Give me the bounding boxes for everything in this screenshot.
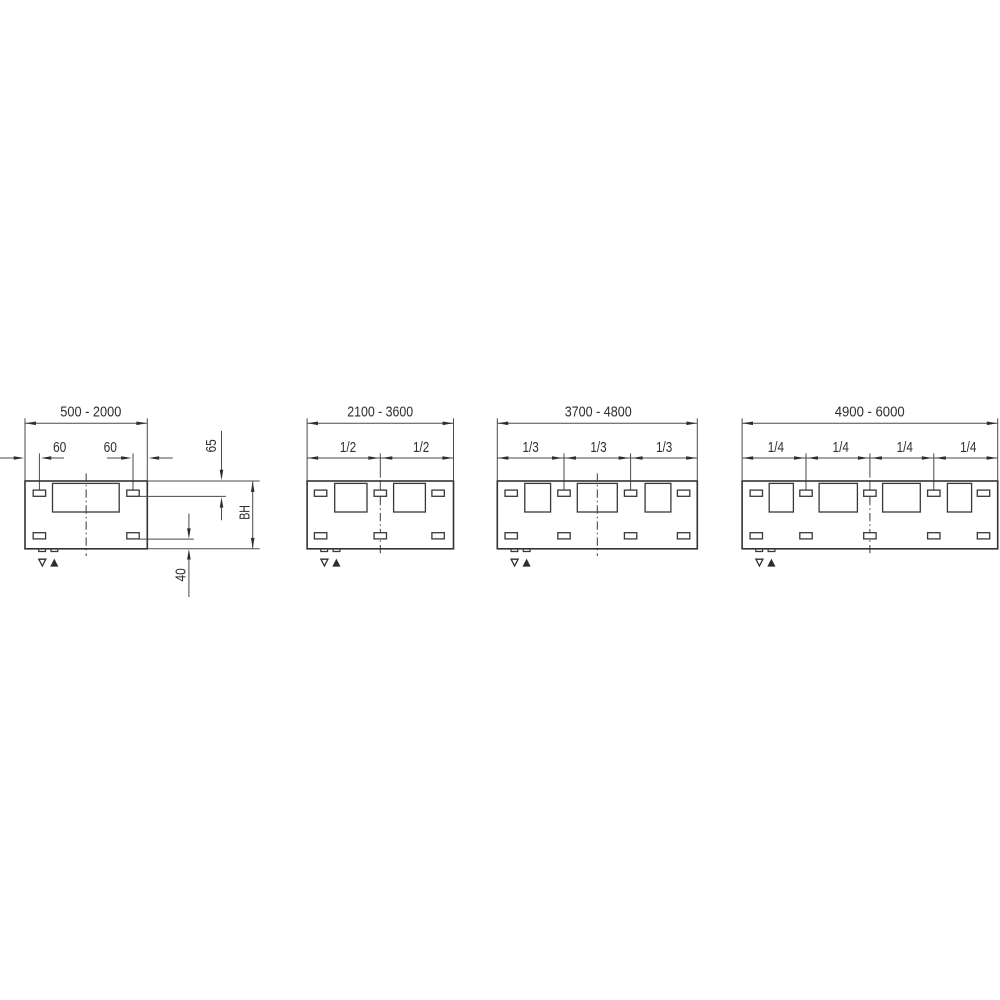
svg-text:1/4: 1/4: [960, 439, 976, 456]
svg-text:1/4: 1/4: [897, 439, 913, 456]
svg-text:65: 65: [203, 439, 220, 452]
svg-text:60: 60: [104, 439, 117, 456]
svg-text:500 - 2000: 500 - 2000: [60, 403, 121, 420]
svg-text:60: 60: [53, 439, 66, 456]
svg-text:1/2: 1/2: [340, 439, 356, 456]
svg-text:3700 - 4800: 3700 - 4800: [565, 403, 632, 420]
svg-text:1/4: 1/4: [833, 439, 849, 456]
svg-text:1/3: 1/3: [590, 439, 606, 456]
svg-text:BH: BH: [236, 505, 253, 520]
svg-text:4900 - 6000: 4900 - 6000: [835, 403, 905, 420]
svg-text:1/4: 1/4: [768, 439, 784, 456]
svg-text:1/3: 1/3: [656, 439, 672, 456]
svg-text:2100 - 3600: 2100 - 3600: [347, 403, 413, 420]
svg-text:1/3: 1/3: [522, 439, 538, 456]
svg-text:40: 40: [172, 568, 189, 581]
svg-text:1/2: 1/2: [413, 439, 429, 456]
